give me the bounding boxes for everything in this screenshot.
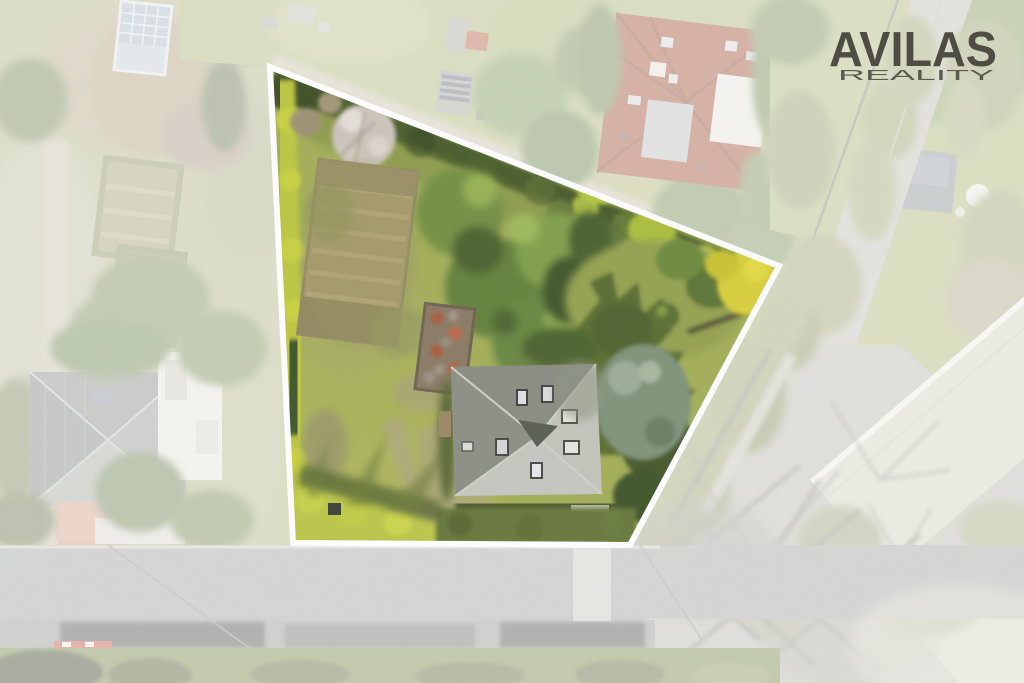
svg-text:REALITY: REALITY: [838, 67, 994, 84]
